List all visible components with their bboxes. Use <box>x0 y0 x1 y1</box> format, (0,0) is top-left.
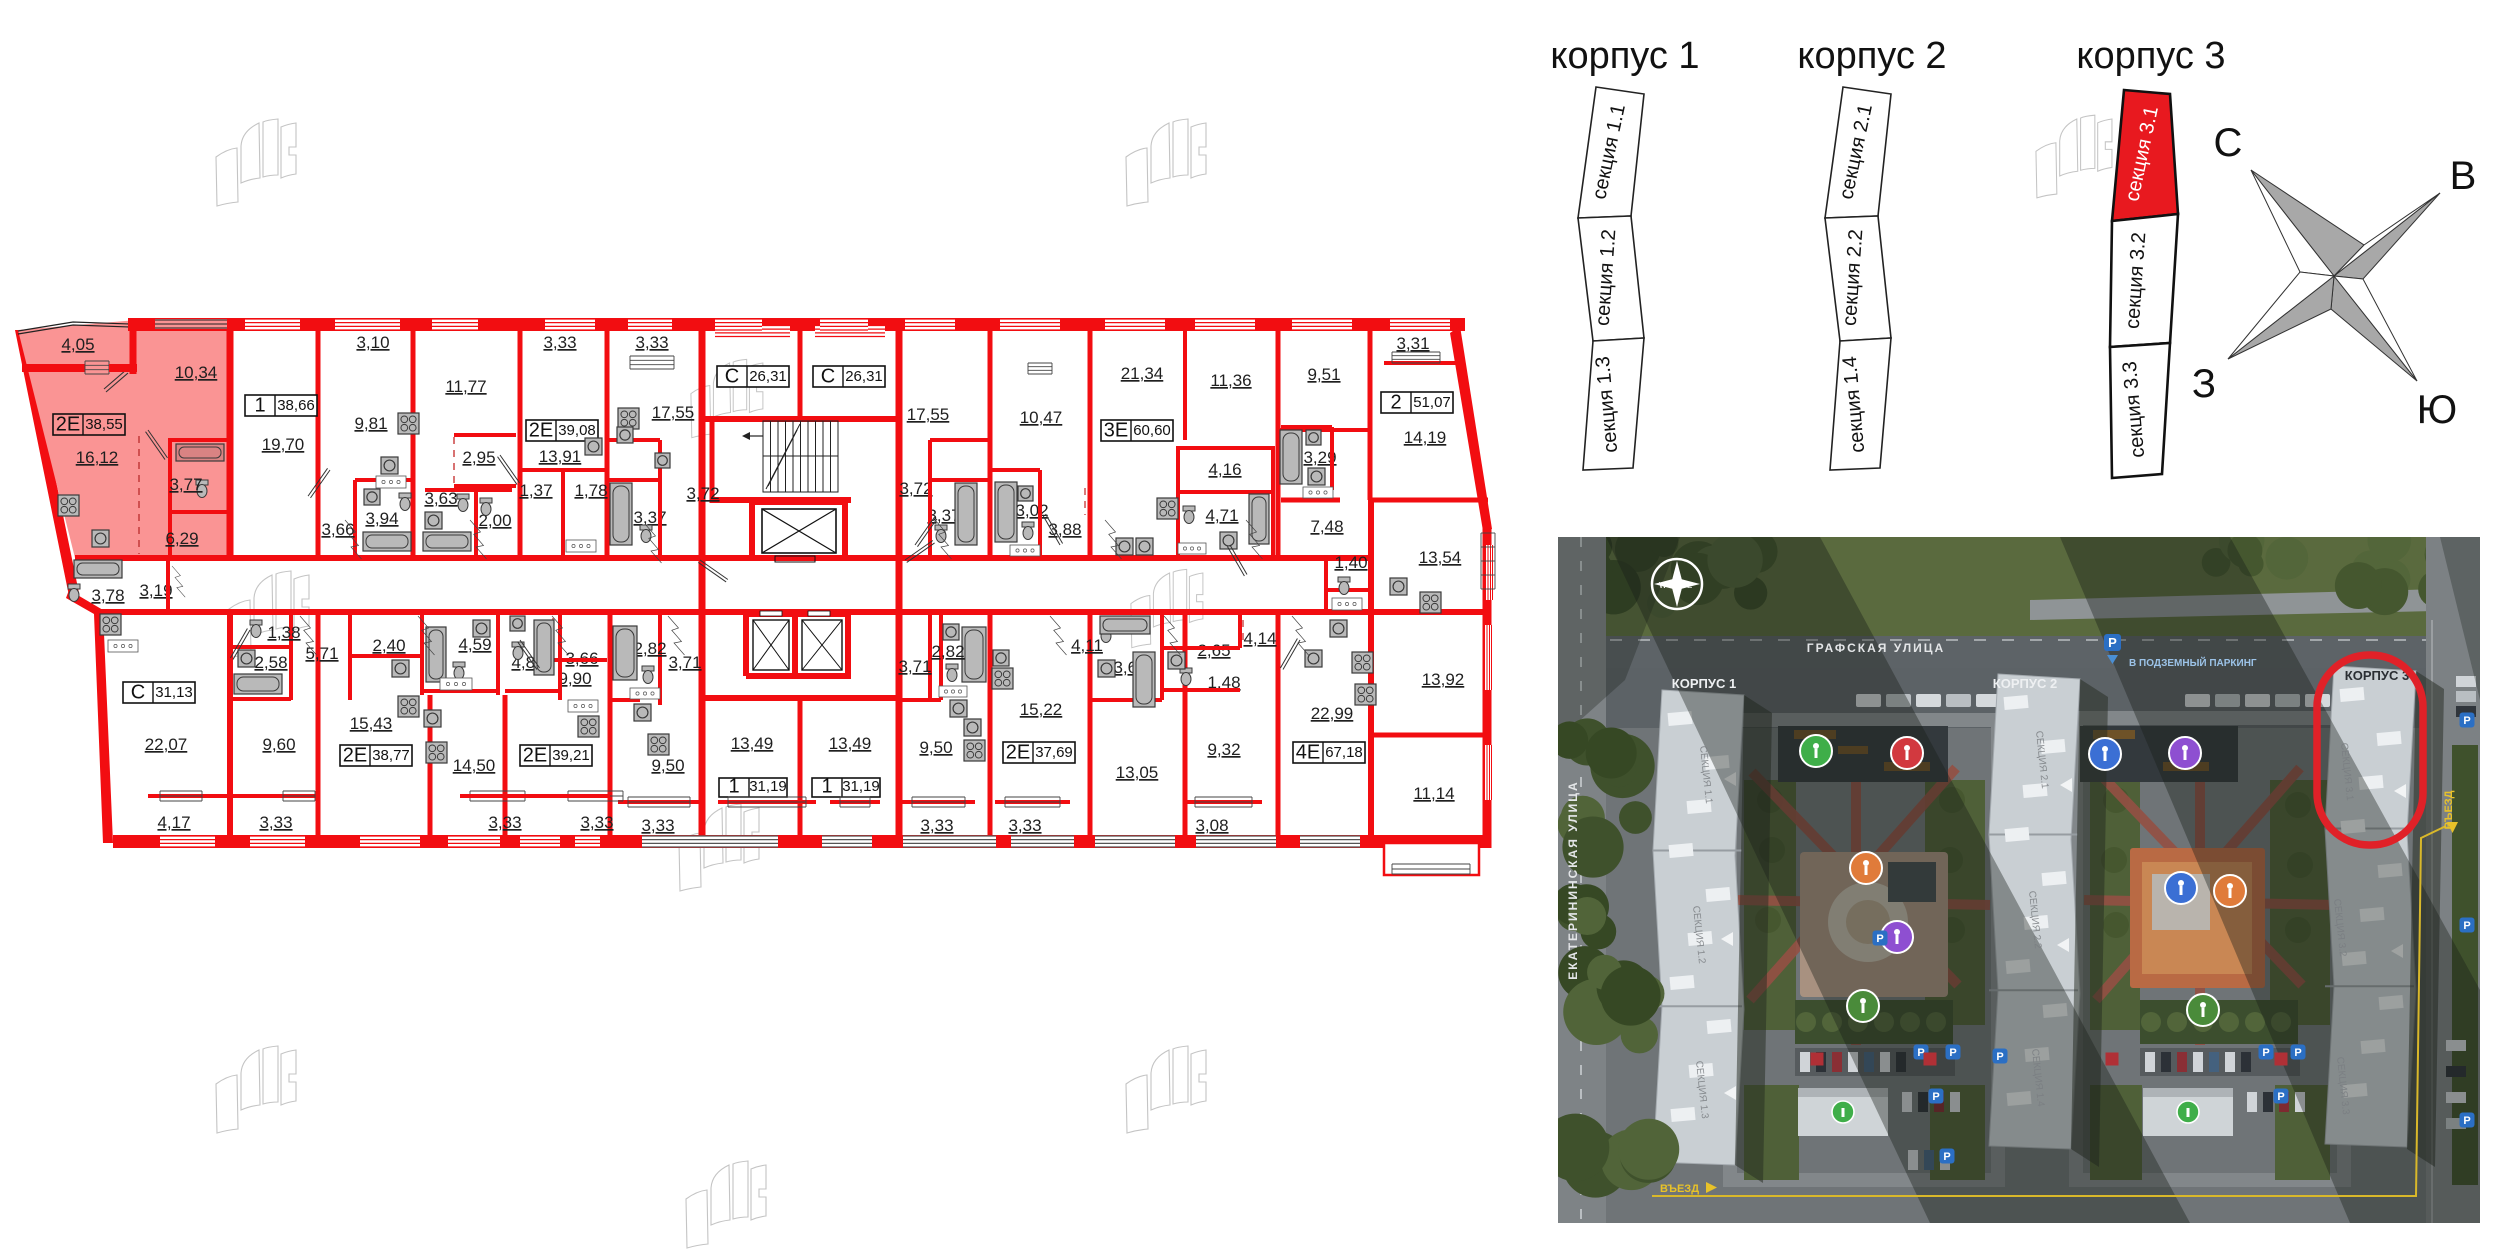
svg-text:3,72: 3,72 <box>899 479 932 498</box>
svg-text:5,71: 5,71 <box>305 644 338 663</box>
svg-text:26,31: 26,31 <box>749 368 787 385</box>
svg-text:корпус 2: корпус 2 <box>1797 35 1946 77</box>
svg-text:60,60: 60,60 <box>1133 422 1171 439</box>
svg-text:37,69: 37,69 <box>1035 744 1073 761</box>
svg-text:22,99: 22,99 <box>1311 704 1354 723</box>
svg-text:17,55: 17,55 <box>907 405 950 424</box>
svg-text:P: P <box>2108 635 2117 650</box>
svg-text:31,19: 31,19 <box>749 778 787 795</box>
svg-text:11,77: 11,77 <box>445 377 486 396</box>
svg-text:P: P <box>1949 1047 1956 1059</box>
svg-text:2,40: 2,40 <box>372 636 405 655</box>
svg-text:38,66: 38,66 <box>277 397 315 414</box>
svg-text:P: P <box>2294 1047 2301 1059</box>
svg-text:2Е: 2Е <box>343 745 367 767</box>
svg-text:2,65: 2,65 <box>1197 641 1230 660</box>
svg-text:P: P <box>2463 1115 2470 1127</box>
svg-text:15,22: 15,22 <box>1020 700 1063 719</box>
svg-text:КОРПУС 3: КОРПУС 3 <box>2345 668 2409 683</box>
svg-text:7,48: 7,48 <box>1310 517 1343 536</box>
svg-text:51,07: 51,07 <box>1413 394 1451 411</box>
svg-text:9,51: 9,51 <box>1307 365 1340 384</box>
svg-text:39,08: 39,08 <box>558 422 596 439</box>
svg-text:11,36: 11,36 <box>1210 371 1251 390</box>
svg-text:16,12: 16,12 <box>76 448 119 467</box>
svg-text:31,13: 31,13 <box>155 684 193 701</box>
svg-text:39,21: 39,21 <box>552 747 590 764</box>
svg-text:4,16: 4,16 <box>1208 460 1241 479</box>
svg-text:1,40: 1,40 <box>1334 553 1367 572</box>
svg-text:2,82: 2,82 <box>633 639 666 658</box>
svg-text:2Е: 2Е <box>529 420 553 442</box>
svg-text:67,18: 67,18 <box>1325 744 1363 761</box>
svg-text:3,33: 3,33 <box>641 816 674 835</box>
svg-text:4Е: 4Е <box>1296 742 1320 764</box>
svg-text:22,07: 22,07 <box>145 735 188 754</box>
svg-text:корпус 1: корпус 1 <box>1550 35 1699 77</box>
svg-text:4,59: 4,59 <box>458 635 491 654</box>
svg-text:2Е: 2Е <box>56 414 80 436</box>
svg-text:13,05: 13,05 <box>1116 763 1159 782</box>
svg-text:КОРПУС 2: КОРПУС 2 <box>1993 676 2057 691</box>
svg-text:31,19: 31,19 <box>842 778 880 795</box>
svg-text:E: E <box>1687 581 1692 590</box>
svg-text:21,34: 21,34 <box>1121 364 1164 383</box>
svg-text:26,31: 26,31 <box>845 368 883 385</box>
svg-text:ВЪЕЗД: ВЪЕЗД <box>1660 1183 1699 1195</box>
svg-text:В ПОДЗЕМНЫЙ ПАРКИНГ: В ПОДЗЕМНЫЙ ПАРКИНГ <box>2129 656 2257 669</box>
svg-text:3,33: 3,33 <box>1008 816 1041 835</box>
svg-text:3,94: 3,94 <box>365 509 398 528</box>
svg-text:2: 2 <box>1390 392 1401 414</box>
svg-text:3,31: 3,31 <box>1396 334 1429 353</box>
svg-text:9,32: 9,32 <box>1207 740 1240 759</box>
svg-text:14,50: 14,50 <box>453 756 496 775</box>
svg-text:38,55: 38,55 <box>85 416 123 433</box>
svg-text:1,37: 1,37 <box>519 481 552 500</box>
svg-text:Ю: Ю <box>2417 388 2457 432</box>
svg-text:3,77: 3,77 <box>169 475 202 494</box>
svg-text:4,11: 4,11 <box>1071 636 1103 655</box>
svg-text:3,33: 3,33 <box>259 813 292 832</box>
svg-text:3,08: 3,08 <box>1195 816 1228 835</box>
svg-text:4,14: 4,14 <box>1243 629 1276 648</box>
svg-text:1: 1 <box>728 776 739 798</box>
svg-text:С: С <box>2214 121 2243 165</box>
svg-text:P: P <box>2277 1091 2284 1103</box>
svg-text:3,66: 3,66 <box>321 520 354 539</box>
svg-text:2Е: 2Е <box>523 745 547 767</box>
svg-text:P: P <box>2463 920 2470 932</box>
svg-text:4,71: 4,71 <box>1205 506 1238 525</box>
svg-text:9,50: 9,50 <box>651 756 684 775</box>
svg-text:11,14: 11,14 <box>1413 784 1454 803</box>
svg-text:С: С <box>131 682 145 704</box>
svg-text:3,78: 3,78 <box>91 586 124 605</box>
svg-text:ЕКАТЕРИНИНСКАЯ УЛИЦА: ЕКАТЕРИНИНСКАЯ УЛИЦА <box>1566 780 1580 979</box>
svg-text:19,70: 19,70 <box>262 435 305 454</box>
svg-text:6,29: 6,29 <box>165 529 198 548</box>
svg-text:3,33: 3,33 <box>920 816 953 835</box>
svg-text:корпус 3: корпус 3 <box>2076 35 2225 77</box>
svg-text:4,05: 4,05 <box>61 335 94 354</box>
svg-text:2,82: 2,82 <box>931 642 964 661</box>
svg-text:P: P <box>1996 1051 2003 1063</box>
svg-text:2,58: 2,58 <box>254 653 287 672</box>
svg-text:17,55: 17,55 <box>652 403 695 422</box>
svg-text:З: З <box>2192 362 2216 406</box>
svg-text:1: 1 <box>821 776 832 798</box>
svg-text:С: С <box>821 366 835 388</box>
svg-text:1: 1 <box>254 395 265 417</box>
svg-text:3,71: 3,71 <box>898 657 931 676</box>
svg-text:1,38: 1,38 <box>267 623 300 642</box>
svg-text:ГРАФСКАЯ УЛИЦА: ГРАФСКАЯ УЛИЦА <box>1807 641 1945 655</box>
svg-text:1,78: 1,78 <box>574 481 607 500</box>
svg-text:P: P <box>1943 1151 1950 1163</box>
svg-text:9,60: 9,60 <box>262 735 295 754</box>
svg-text:3,72: 3,72 <box>686 484 719 503</box>
svg-text:14,19: 14,19 <box>1404 428 1447 447</box>
svg-text:2,95: 2,95 <box>462 448 495 467</box>
svg-text:3,71: 3,71 <box>668 653 701 672</box>
svg-text:15,43: 15,43 <box>350 714 393 733</box>
svg-text:13,54: 13,54 <box>1419 548 1462 567</box>
svg-text:3,33: 3,33 <box>543 333 576 352</box>
svg-text:10,47: 10,47 <box>1020 408 1063 427</box>
svg-text:P: P <box>2463 715 2470 727</box>
svg-text:38,77: 38,77 <box>372 747 410 764</box>
svg-text:КОРПУС 1: КОРПУС 1 <box>1672 676 1736 691</box>
svg-text:3,33: 3,33 <box>580 813 613 832</box>
svg-text:В: В <box>2450 154 2477 198</box>
svg-text:9,81: 9,81 <box>354 414 387 433</box>
svg-text:3Е: 3Е <box>1104 420 1128 442</box>
svg-text:13,49: 13,49 <box>731 734 774 753</box>
svg-text:С: С <box>725 366 739 388</box>
svg-text:10,34: 10,34 <box>175 363 218 382</box>
svg-text:3,88: 3,88 <box>1048 520 1081 539</box>
svg-text:P: P <box>2262 1047 2269 1059</box>
svg-text:9,50: 9,50 <box>919 738 952 757</box>
svg-text:9,90: 9,90 <box>558 669 591 688</box>
svg-text:3,10: 3,10 <box>356 333 389 352</box>
svg-text:2Е: 2Е <box>1006 742 1030 764</box>
svg-text:P: P <box>1932 1091 1939 1103</box>
svg-text:W: W <box>1659 581 1667 590</box>
svg-text:3,33: 3,33 <box>635 333 668 352</box>
svg-text:4,17: 4,17 <box>157 813 190 832</box>
svg-text:13,49: 13,49 <box>829 734 872 753</box>
svg-text:3,33: 3,33 <box>488 813 521 832</box>
svg-text:P: P <box>1876 933 1883 945</box>
svg-text:13,92: 13,92 <box>1422 670 1465 689</box>
svg-text:13,91: 13,91 <box>539 447 582 466</box>
